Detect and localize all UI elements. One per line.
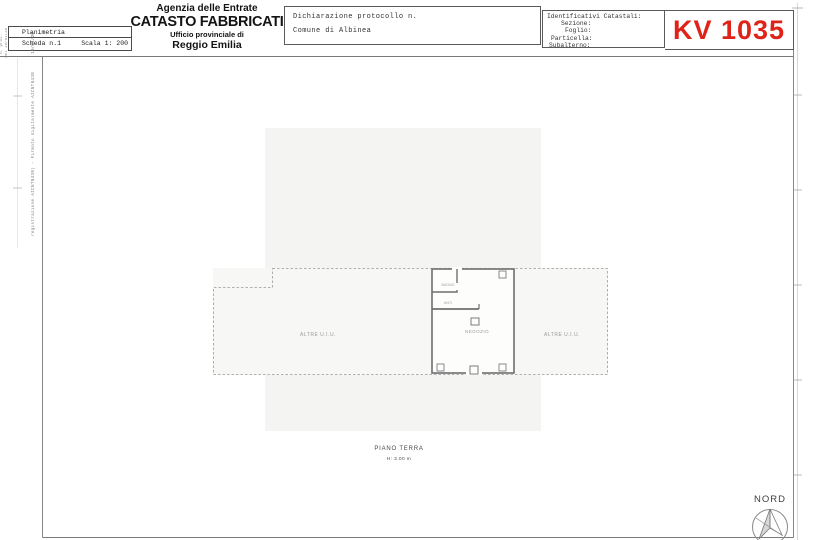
cadastral-ids-box: Identificativi Catastali: Sezione: Fogli… xyxy=(542,10,665,48)
left-ruler xyxy=(13,58,22,248)
scale-value: Scala 1: 200 xyxy=(81,40,128,47)
north-label: NORD xyxy=(754,494,786,505)
agency-header: Agenzia delle Entrate CATASTO FABBRICATI… xyxy=(128,3,286,51)
room-label-bath: BAGNO xyxy=(442,283,455,287)
digital-signature-note: registrazione AICNTN43B) - Firmato digit… xyxy=(31,58,36,236)
drawing-area: ALTRE U.I.U. ALTRE U.I.U. NEGOZIO BAGNO … xyxy=(0,0,818,540)
sheet-code: KV 1035 xyxy=(673,15,785,46)
sheet-code-box: KV 1035 xyxy=(665,10,794,50)
floor-height: H: 3.00 m xyxy=(387,456,411,462)
cadastral-sezione: Sezione: xyxy=(561,20,664,27)
office-label: Ufficio provinciale di xyxy=(128,30,286,39)
room-label-right: ALTRE U.I.U. xyxy=(544,332,580,338)
cadastral-particella: Particella: xyxy=(551,35,664,42)
declaration-protocol: Dichiarazione protocollo n. xyxy=(293,13,417,21)
catasto-title: CATASTO FABBRICATI xyxy=(128,15,286,30)
plan-info-box: Planimetria Scheda n.1 Scala 1: 200 xyxy=(8,26,132,51)
scan-shading-strip xyxy=(213,268,608,375)
margin-date-note: 10/01/20 xyxy=(31,2,36,54)
margin-micro-note-2: del 10/01/20 xyxy=(5,2,9,58)
cadastral-title: Identificativi Catastali: xyxy=(547,13,664,20)
room-label-anti: ANTI xyxy=(444,301,452,305)
room-label-left: ALTRE U.I.U. xyxy=(300,332,336,338)
cadastral-floorplan-sheet: { "header": { "info_box": { "row1": "Pla… xyxy=(0,0,818,540)
office-city: Reggio Emilia xyxy=(128,39,286,51)
cadastral-foglio: Foglio: xyxy=(565,27,664,34)
cadastral-subalterno: Subalterno: xyxy=(549,42,664,49)
info-box-title: Planimetria xyxy=(22,29,65,36)
floor-caption: PIANO TERRA xyxy=(374,446,423,452)
room-label-center: NEGOZIO xyxy=(465,329,489,334)
declaration-box: Dichiarazione protocollo n. Comune di Al… xyxy=(284,6,541,45)
compass-rose-icon xyxy=(753,509,788,540)
margin-micro-note-1: n. prot. xyxy=(0,2,4,54)
pillar-center xyxy=(471,318,479,325)
threshold-bottom xyxy=(470,366,478,374)
declaration-municipality: Comune di Albinea xyxy=(293,27,371,35)
sheet-number: Scheda n.1 xyxy=(22,40,61,47)
